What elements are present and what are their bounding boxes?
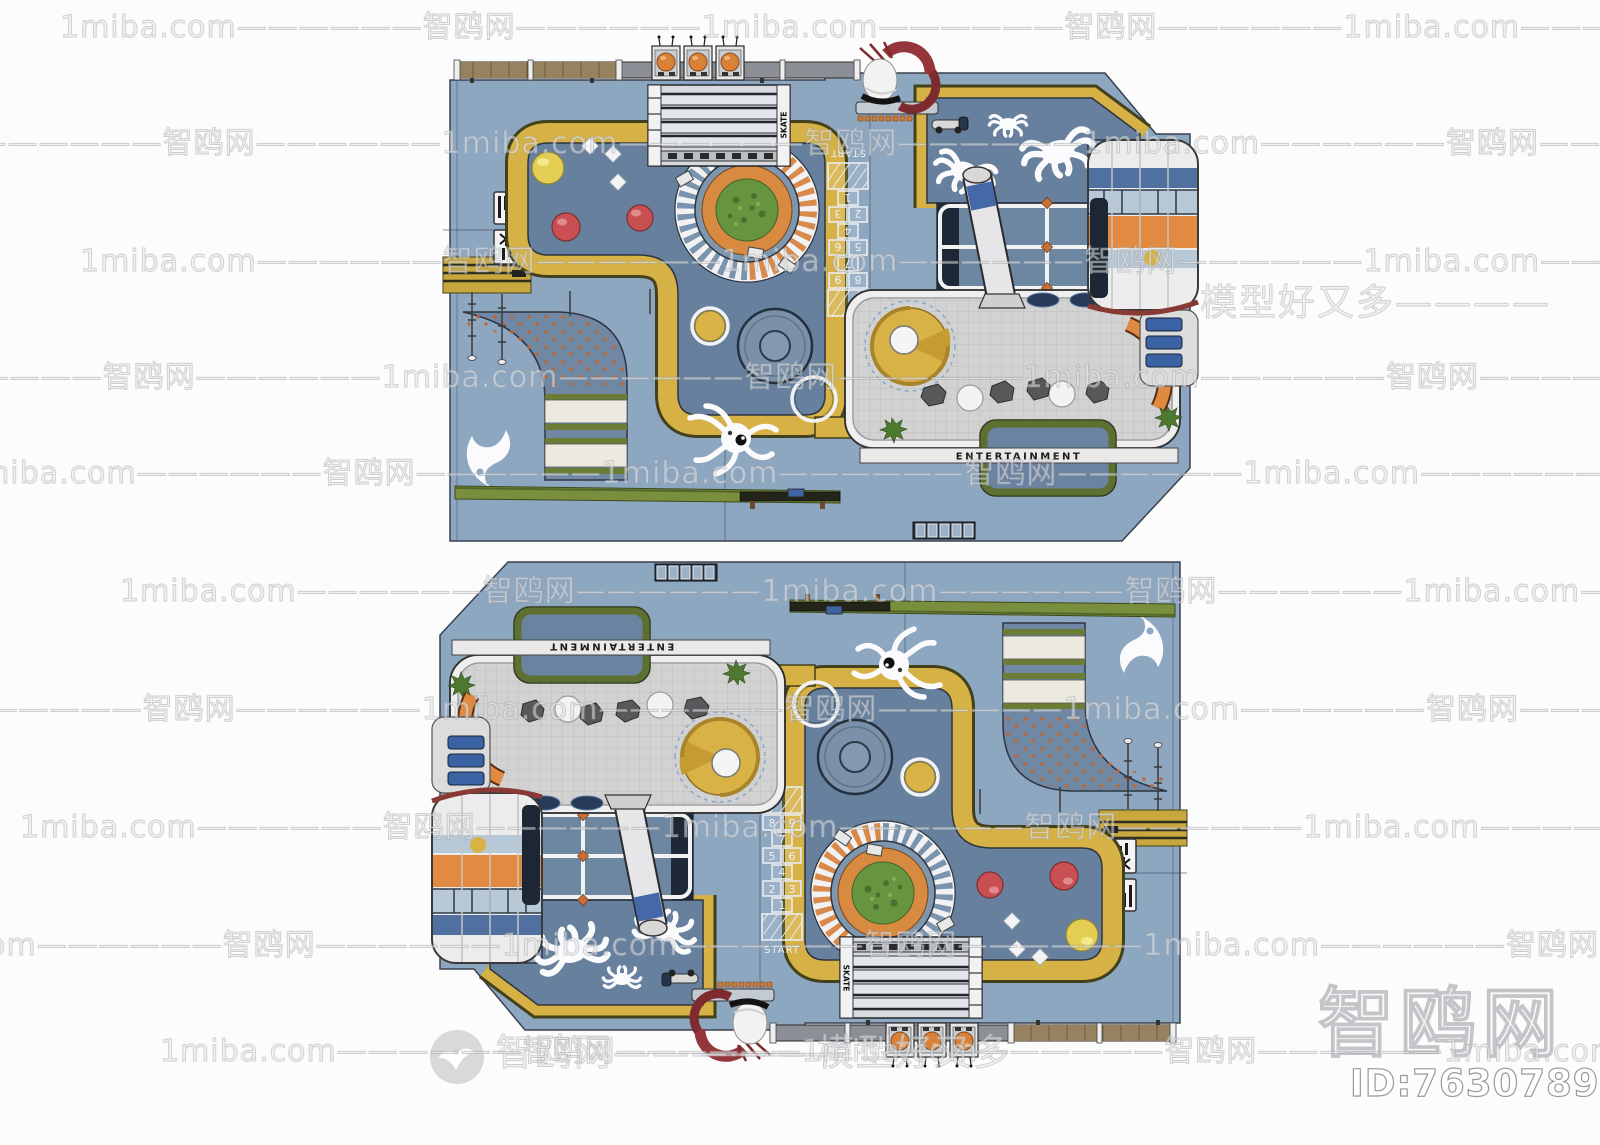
track-label: SKATE xyxy=(780,112,789,139)
watermark-brand-corner: 智鸥网 xyxy=(1318,962,1564,1072)
entertainment-strip: ENTERTAINMENT xyxy=(860,448,1178,463)
hopscotch-8: 8 xyxy=(855,273,862,286)
entertainment-label: ENTERTAINMENT xyxy=(956,452,1082,463)
model-preview-image: 8 9 7 5 6 4 2 3 1 START xyxy=(0,0,1600,1145)
watermark-row: 1miba.com——————智鸥网——————1miba.com——————智… xyxy=(60,2,1600,46)
hopscotch-4: 4 xyxy=(845,224,852,237)
tower-window-panels xyxy=(1146,318,1182,367)
model-id-label: ID:763078934 xyxy=(1350,1062,1600,1105)
hopscotch-1: 1 xyxy=(845,191,852,204)
playground-plan-top-view: 8 9 7 5 6 4 2 3 1 START xyxy=(440,58,1200,543)
climbing-grid xyxy=(937,197,1103,293)
hopscotch-2: 2 xyxy=(855,207,862,220)
hopscotch-start-label: START xyxy=(830,147,866,158)
skate-track: SKATE xyxy=(648,85,790,166)
hopscotch-9: 9 xyxy=(835,273,842,286)
window-strip xyxy=(913,522,975,539)
playground-plan-bottom-view xyxy=(430,560,1190,1045)
hopscotch-7: 7 xyxy=(845,257,852,270)
spring-rider-pods xyxy=(652,36,744,81)
watermark-moxinghaoyouduo-right: 模型好又多———— xyxy=(1200,272,1551,326)
playground-plan: 8 9 7 5 6 4 2 3 1 START xyxy=(443,36,1198,542)
hopscotch-5: 5 xyxy=(855,240,862,253)
water-bowl xyxy=(1027,293,1059,307)
hopscotch-6: 6 xyxy=(835,240,842,253)
hopscotch-3: 3 xyxy=(835,207,842,220)
